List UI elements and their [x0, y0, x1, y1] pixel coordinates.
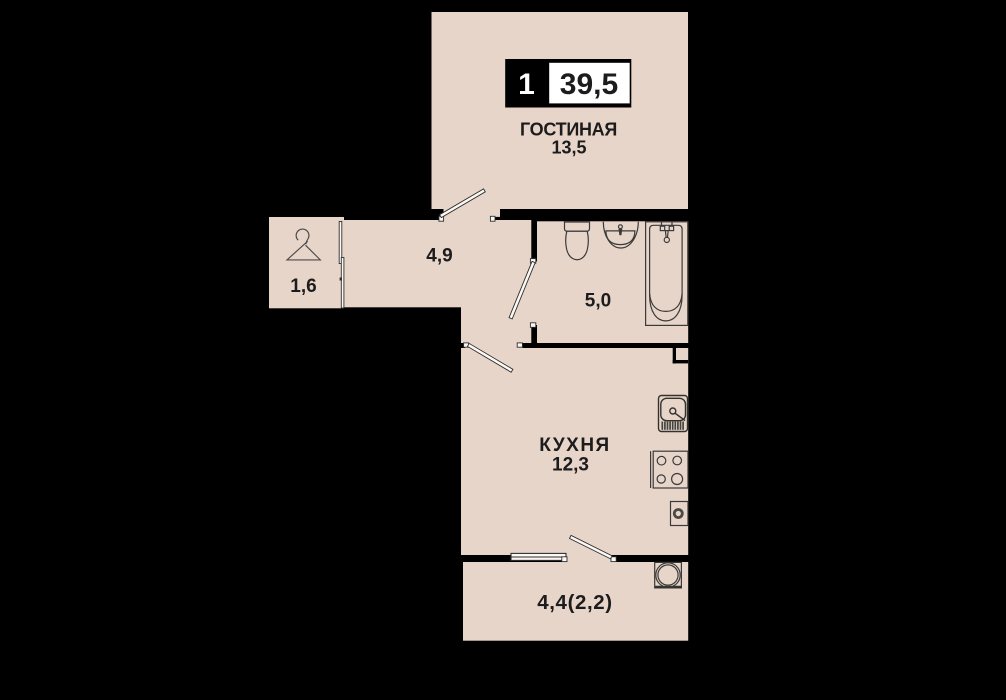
svg-text:4,4(2,2): 4,4(2,2)	[537, 591, 612, 614]
svg-text:12,3: 12,3	[552, 454, 589, 475]
svg-text:4,9: 4,9	[426, 245, 452, 266]
svg-text:ГОСТИНАЯ: ГОСТИНАЯ	[520, 119, 617, 139]
svg-text:39,5: 39,5	[560, 68, 618, 101]
svg-text:5,0: 5,0	[585, 290, 611, 311]
svg-text:1,6: 1,6	[290, 276, 316, 297]
svg-text:1: 1	[518, 68, 535, 101]
svg-text:13,5: 13,5	[551, 137, 586, 157]
svg-text:КУХНЯ: КУХНЯ	[539, 435, 610, 456]
